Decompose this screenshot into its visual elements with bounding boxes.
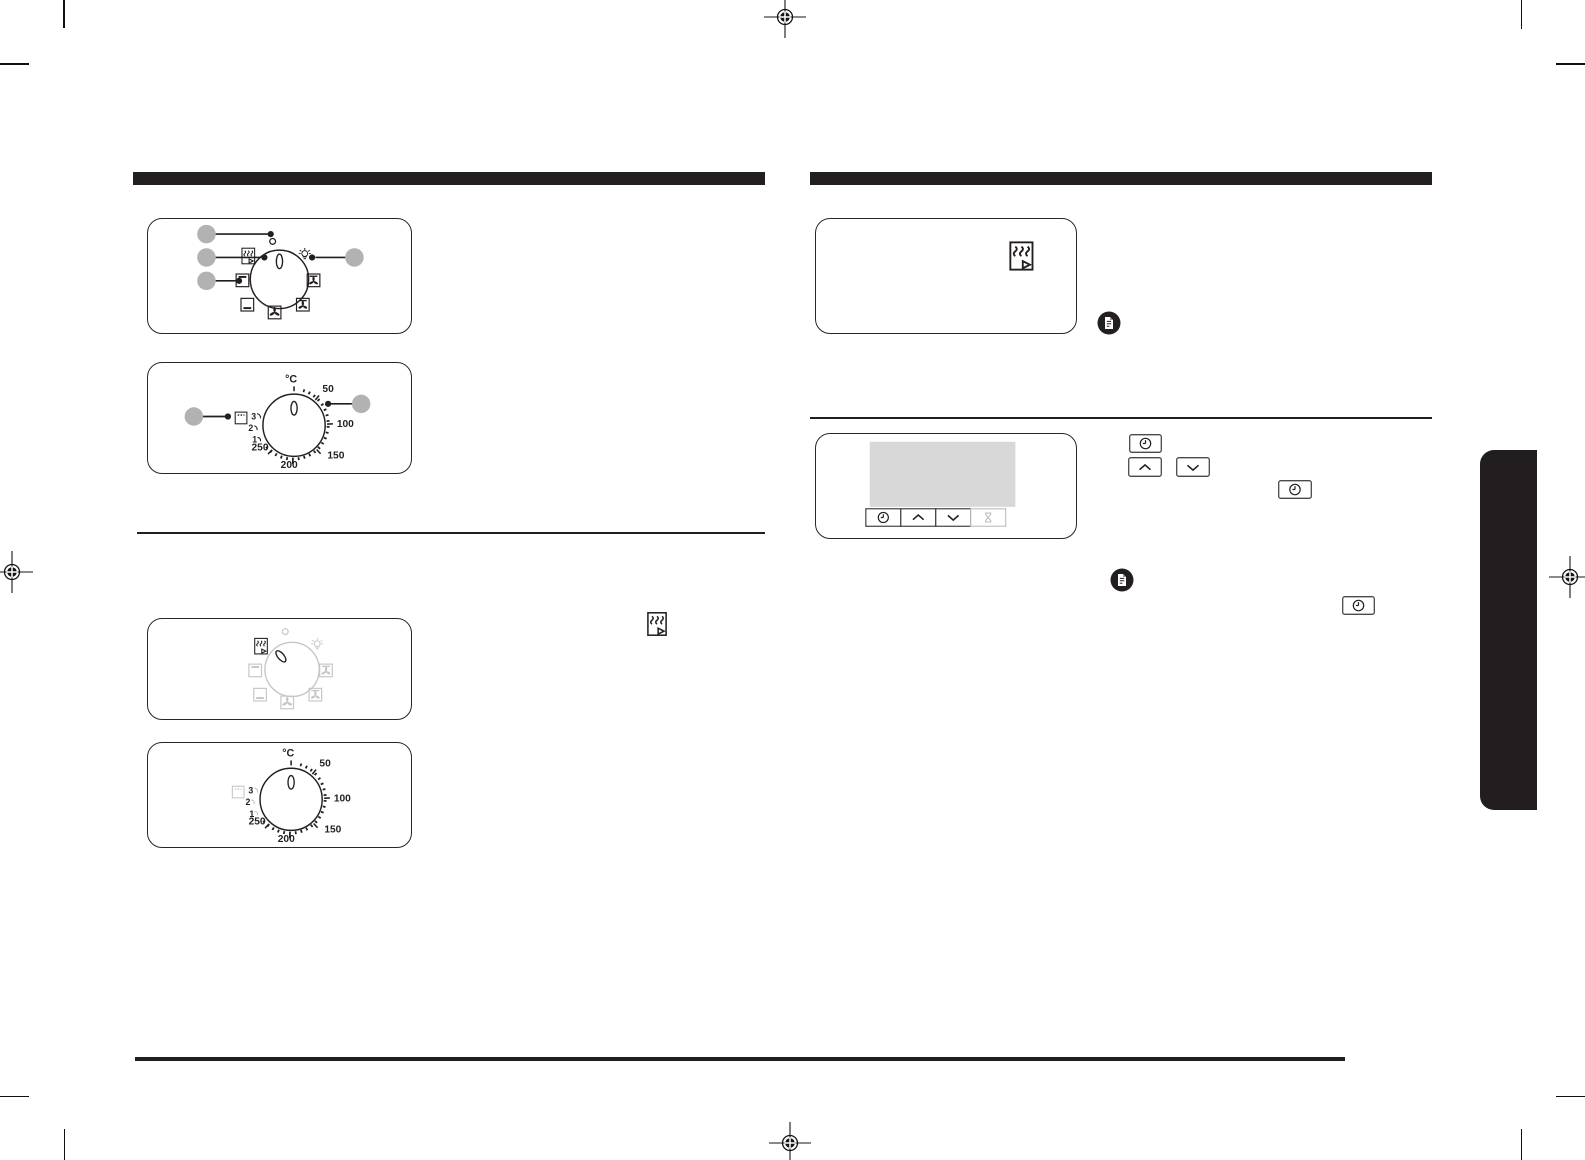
grill-icon <box>235 412 247 424</box>
convection-fan-icon <box>281 696 294 709</box>
temp-knob <box>260 768 322 830</box>
grill-fan-icon <box>1010 242 1032 269</box>
grill-level-group-disabled: 3 2 1 <box>232 786 257 819</box>
knob-indicator <box>288 776 294 790</box>
temp-label-200: 200 <box>278 834 295 845</box>
chapter-side-tab <box>1480 450 1537 810</box>
mode-dial-figure-box <box>147 218 412 334</box>
section-rule-left <box>137 532 765 534</box>
grill-level-1: 1 <box>252 435 257 445</box>
temp-label-50: 50 <box>322 384 334 395</box>
down-button-inline <box>1176 457 1210 477</box>
grill-fan-icon-selected <box>255 638 268 654</box>
temp-label-200: 200 <box>281 460 298 471</box>
grill-level-group: 3 2 1 <box>235 411 260 444</box>
temp-label-50: 50 <box>319 758 331 769</box>
knob-indicator <box>274 649 287 663</box>
timer-button-inline <box>1342 596 1375 615</box>
temp-label-150: 150 <box>324 824 341 835</box>
crop-mark-top-left-h <box>0 63 29 65</box>
temp-dial-setting-box: °C 50 100 150 200 250 3 2 1 <box>147 742 412 848</box>
fan-bottom-heat-icon <box>297 298 310 311</box>
timer-button-inline <box>1129 434 1162 453</box>
fan-bottom-heat-icon <box>309 688 322 701</box>
section-header-bar-left <box>133 172 765 185</box>
temp-dial-figure-box: °C 50 100 150 200 250 3 2 1 <box>147 362 412 474</box>
callout-circle <box>185 407 203 425</box>
registration-mark-left <box>0 549 35 595</box>
temp-knob <box>263 394 325 456</box>
grill-level-2: 2 <box>245 797 250 807</box>
callout-dots <box>225 401 331 420</box>
temp-scale-ticks <box>262 760 329 838</box>
registration-mark-bottom <box>767 1120 813 1160</box>
mode-knob <box>250 250 308 308</box>
up-button <box>901 509 936 526</box>
crop-mark-bottom-right-h <box>1556 1096 1585 1098</box>
registration-mark-top <box>762 0 808 40</box>
grill-fan-description-box <box>815 218 1077 334</box>
section-header-bar-right <box>810 172 1432 185</box>
temp-scale-ticks <box>265 386 333 464</box>
grill-fan-icon-inline <box>642 608 672 642</box>
up-button-inline <box>1128 457 1162 477</box>
down-button <box>936 509 971 526</box>
timer-button-inline <box>1278 480 1312 499</box>
grill-fan-icon <box>242 248 255 264</box>
note-icon <box>1097 311 1121 335</box>
note-icon <box>1110 568 1134 592</box>
registration-mark-right <box>1547 554 1585 600</box>
panel-button-row <box>866 509 1006 526</box>
callout-circle <box>197 272 216 291</box>
crop-mark-top-right-v <box>1521 0 1523 29</box>
temp-label-100: 100 <box>334 793 351 804</box>
temp-label-100: 100 <box>337 419 354 430</box>
grill-icon <box>232 786 244 798</box>
crop-mark-bottom-right-v <box>1521 1129 1523 1160</box>
callout-circle <box>197 248 216 266</box>
section-rule-right <box>810 417 1432 419</box>
timer-panel-figure-box <box>815 433 1077 539</box>
crop-mark-bottom-left-v <box>64 1129 66 1160</box>
mode-dial-selection-box <box>147 618 412 720</box>
temp-unit-label: °C <box>282 748 294 760</box>
grill-level-2: 2 <box>248 423 253 433</box>
timer-display <box>870 442 1016 507</box>
temp-label-150: 150 <box>327 450 344 461</box>
bottom-heat-icon <box>241 298 254 311</box>
callout-circle <box>345 248 364 266</box>
callout-leader-lines <box>216 234 346 281</box>
lamp-icon <box>311 638 323 649</box>
footer-rule <box>135 1057 1345 1061</box>
manual-page: °C 50 100 150 200 250 3 2 1 <box>0 0 1585 1160</box>
fan-top-heat-icon <box>320 664 333 677</box>
knob-indicator <box>276 254 282 269</box>
crop-mark-bottom-left-h <box>0 1096 29 1098</box>
crop-mark-top-right-h <box>1556 63 1585 65</box>
temp-unit-label: °C <box>285 373 297 385</box>
grill-level-1: 1 <box>249 809 254 819</box>
bottom-heat-icon <box>254 688 267 701</box>
knob-indicator <box>291 401 297 415</box>
grill-level-3: 3 <box>248 786 253 796</box>
off-position-marker <box>270 238 276 244</box>
callout-circle <box>197 225 216 244</box>
callout-circle <box>352 395 370 413</box>
off-position-marker <box>282 629 288 635</box>
grill-level-3: 3 <box>251 411 256 421</box>
top-heat-icon <box>249 664 262 677</box>
crop-mark-top-left-v <box>63 0 65 28</box>
